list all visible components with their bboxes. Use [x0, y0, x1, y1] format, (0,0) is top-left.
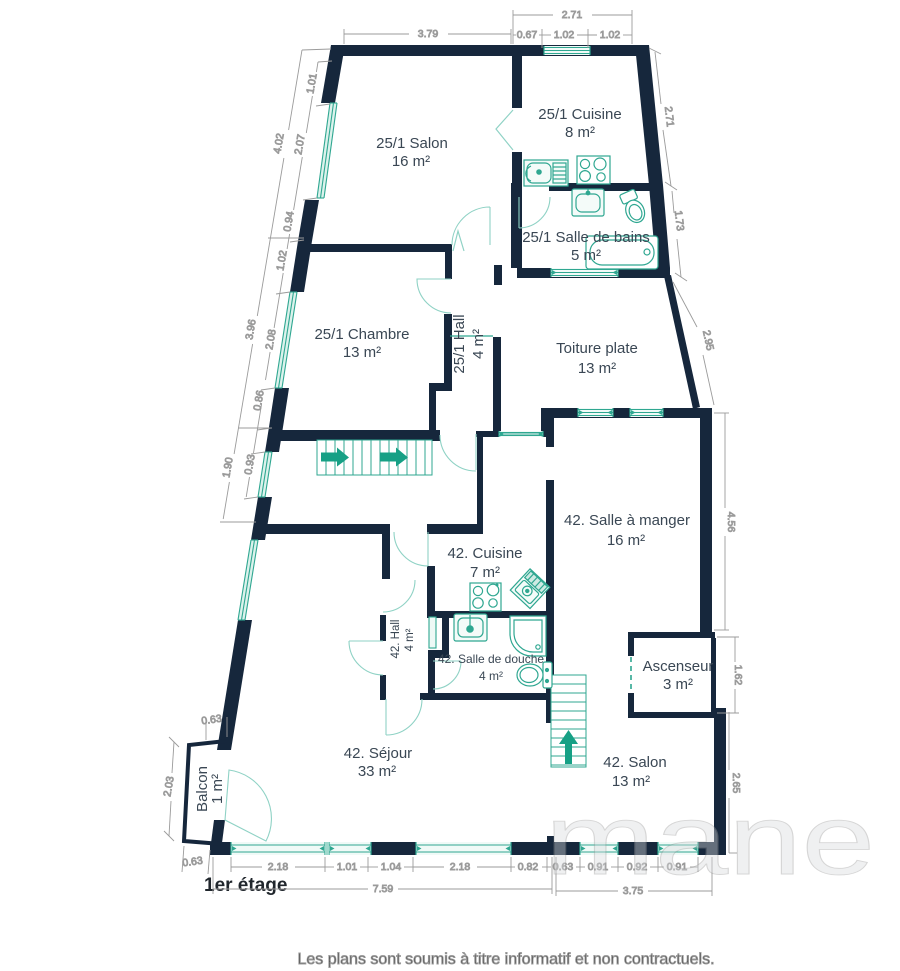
- svg-text:4 m²: 4 m²: [404, 628, 416, 651]
- svg-text:mane: mane: [545, 784, 875, 896]
- svg-text:4.56: 4.56: [725, 512, 737, 533]
- svg-text:25/1 Salle de bains: 25/1 Salle de bains: [522, 229, 650, 246]
- svg-text:25/1 Hall: 25/1 Hall: [451, 314, 468, 373]
- svg-text:1 m²: 1 m²: [209, 774, 226, 804]
- svg-text:16 m²: 16 m²: [607, 532, 645, 549]
- svg-text:Toiture plate: Toiture plate: [556, 340, 638, 357]
- svg-text:3 m²: 3 m²: [663, 676, 693, 693]
- svg-text:4 m²: 4 m²: [470, 329, 487, 359]
- svg-text:42. Cuisine: 42. Cuisine: [447, 545, 522, 562]
- svg-text:1.73: 1.73: [672, 210, 686, 232]
- svg-text:42. Salle à manger: 42. Salle à manger: [564, 512, 690, 529]
- svg-text:25/1 Salon: 25/1 Salon: [376, 135, 448, 152]
- svg-text:1.02: 1.02: [554, 29, 575, 41]
- svg-text:1.62: 1.62: [732, 665, 744, 686]
- svg-text:Les plans sont soumis à titre: Les plans sont soumis à titre informatif…: [297, 951, 714, 968]
- svg-text:1.04: 1.04: [381, 861, 402, 873]
- svg-text:42. Séjour: 42. Séjour: [344, 745, 412, 762]
- svg-text:42. Salle de douche: 42. Salle de douche: [438, 652, 544, 666]
- svg-text:7 m²: 7 m²: [470, 564, 500, 581]
- svg-text:1.02: 1.02: [600, 29, 621, 41]
- svg-text:25/1 Chambre: 25/1 Chambre: [314, 326, 409, 343]
- svg-text:2.18: 2.18: [268, 861, 289, 873]
- svg-text:0.67: 0.67: [517, 29, 538, 41]
- svg-text:33 m²: 33 m²: [358, 763, 396, 780]
- svg-text:2.18: 2.18: [450, 861, 471, 873]
- svg-text:2.71: 2.71: [562, 9, 583, 21]
- svg-text:4 m²: 4 m²: [479, 669, 503, 683]
- svg-text:1er étage: 1er étage: [204, 875, 287, 896]
- svg-text:25/1 Cuisine: 25/1 Cuisine: [538, 106, 621, 123]
- svg-text:7.59: 7.59: [373, 883, 394, 895]
- svg-text:1.01: 1.01: [337, 861, 358, 873]
- svg-text:13 m²: 13 m²: [343, 344, 381, 361]
- svg-text:0.82: 0.82: [518, 861, 539, 873]
- svg-text:2.71: 2.71: [662, 106, 676, 128]
- svg-text:3.79: 3.79: [418, 28, 439, 40]
- svg-text:16 m²: 16 m²: [392, 153, 430, 170]
- svg-text:13 m²: 13 m²: [578, 360, 616, 377]
- svg-text:Ascenseur: Ascenseur: [643, 658, 714, 675]
- svg-text:5 m²: 5 m²: [571, 247, 601, 264]
- svg-text:8 m²: 8 m²: [565, 124, 595, 141]
- svg-text:42. Hall: 42. Hall: [390, 620, 402, 659]
- svg-text:42. Salon: 42. Salon: [603, 754, 666, 771]
